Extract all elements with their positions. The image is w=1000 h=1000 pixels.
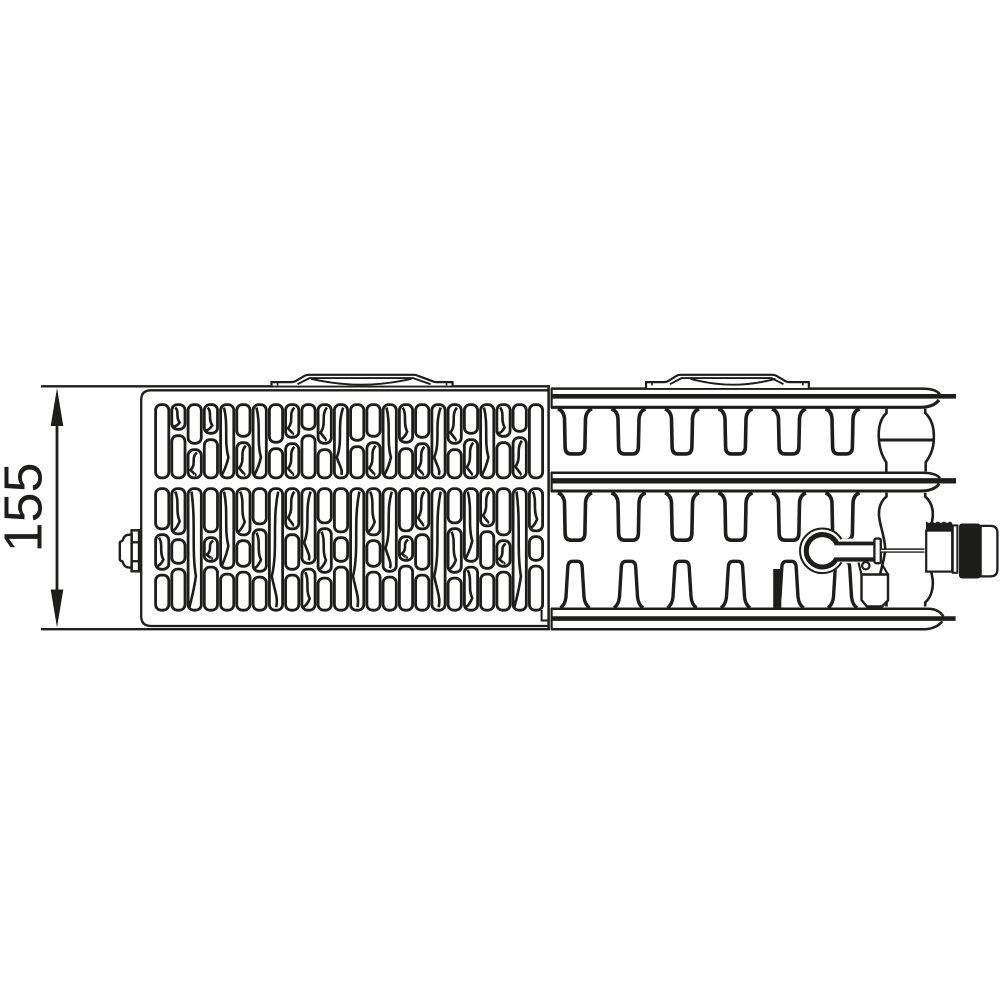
svg-text:155: 155 <box>0 462 54 552</box>
